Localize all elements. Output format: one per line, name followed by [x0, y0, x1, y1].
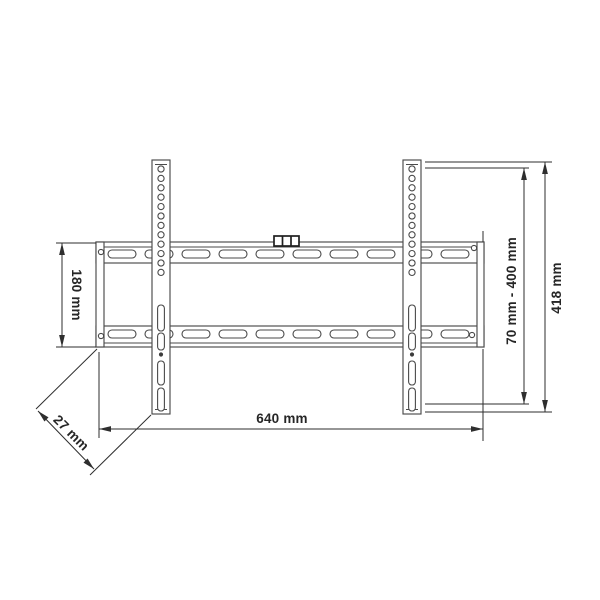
right-vesa-rail: [403, 160, 421, 414]
dimension-label-mount-range: 70 mm - 400 mm: [504, 237, 519, 345]
dimension-label-depth: 27 mm: [50, 412, 92, 454]
cable-clip: [274, 236, 299, 246]
wall-plate-right-end: [477, 242, 484, 347]
wall-plate-left-end: [96, 242, 104, 347]
dimension-total-height: 418 mm: [425, 162, 564, 412]
technical-drawing-canvas: 180 mm 27 mm 640 mm 70 mm - 400 mm 418: [0, 0, 600, 600]
left-vesa-rail: [152, 160, 170, 414]
dimension-label-width: 640 mm: [256, 411, 307, 426]
wall-mount-diagram: 180 mm 27 mm 640 mm 70 mm - 400 mm 418: [0, 0, 600, 600]
dimension-depth: 27 mm: [36, 349, 151, 475]
dimension-label-plate-height: 180 mm: [69, 269, 84, 320]
dimension-plate-height: 180 mm: [56, 243, 96, 347]
dimension-label-total-height: 418 mm: [549, 262, 564, 313]
